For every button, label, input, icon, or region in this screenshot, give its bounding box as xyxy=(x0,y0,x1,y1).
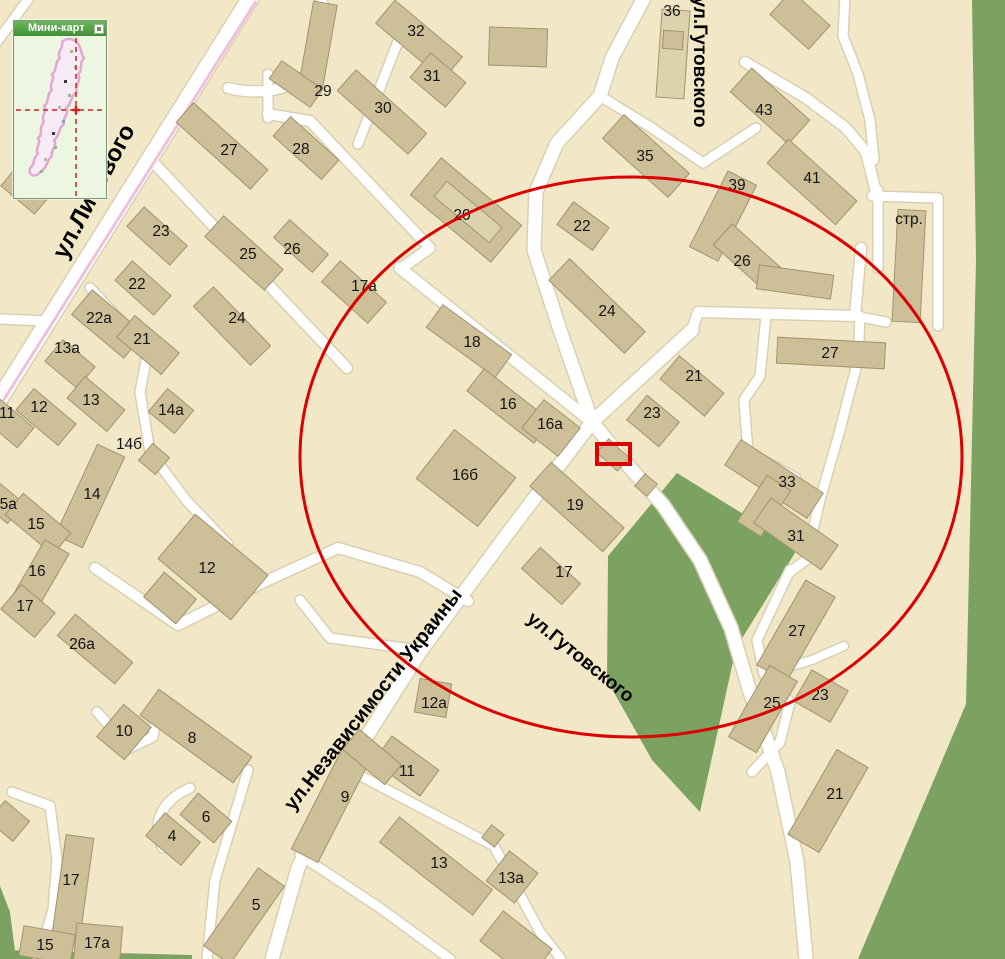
minimap-close-icon[interactable] xyxy=(94,24,104,34)
building-number-label: 35 xyxy=(636,148,653,165)
building-number-label: 15 xyxy=(27,516,44,533)
road xyxy=(855,316,886,322)
building-number-label: 26 xyxy=(733,253,750,270)
building-number-label: 12a xyxy=(421,695,447,712)
building-number-label: 17 xyxy=(16,598,33,615)
building-number-label: 30 xyxy=(374,100,392,117)
building-number-label: 4 xyxy=(168,828,177,845)
building-number-label: 31 xyxy=(423,68,440,85)
minimap-body[interactable] xyxy=(14,36,106,198)
building-number-label: 10 xyxy=(115,723,133,740)
building-number-label: 27 xyxy=(821,345,838,362)
minimap-detail-speck xyxy=(44,158,47,161)
minimap-title: Мини-карт xyxy=(28,21,85,36)
minimap-position-marker xyxy=(72,106,80,114)
building-number-label: 31 xyxy=(787,528,804,545)
building-number-label: 26a xyxy=(69,636,95,653)
building-number-label: 21 xyxy=(133,331,150,348)
building-number-label: 23 xyxy=(643,405,660,422)
building-number-label: 13a xyxy=(54,340,80,357)
minimap-detail-speck xyxy=(58,106,61,109)
building-number-label: 14б xyxy=(116,436,142,453)
road xyxy=(0,319,46,321)
building-number-label: 17 xyxy=(555,564,572,581)
building-number-label: 29 xyxy=(314,83,331,100)
minimap-detail-speck xyxy=(68,94,71,97)
map-canvas[interactable]: 293231302827232526222422a2113a12131114a1… xyxy=(0,0,1005,959)
building-number-label: 19 xyxy=(566,497,583,514)
minimap-header: Мини-карт xyxy=(14,21,106,36)
building-number-label: 27 xyxy=(788,623,805,640)
building-number-label: 11 xyxy=(0,405,15,422)
minimap-detail-speck xyxy=(52,132,55,135)
building-number-label: 5 xyxy=(252,897,261,914)
building-number-label: 17a xyxy=(84,935,110,952)
building-number-label: 43 xyxy=(755,102,772,119)
minimap[interactable]: Мини-карт xyxy=(13,20,107,199)
minimap-detail-speck xyxy=(54,146,57,149)
building-number-label: 17 xyxy=(62,872,79,889)
building-number-label: 21 xyxy=(685,368,702,385)
building-number-label: 16б xyxy=(452,467,478,484)
building-number-label: 18 xyxy=(463,334,480,351)
minimap-detail-speck xyxy=(70,50,73,53)
building-number-label: 14 xyxy=(83,486,101,503)
minimap-detail-speck xyxy=(62,120,65,123)
street-name-label: ул.Гутовского xyxy=(689,0,710,128)
building[interactable] xyxy=(656,9,690,99)
building-number-label: 32 xyxy=(407,23,424,40)
building-number-label: 13a xyxy=(498,870,524,887)
building-number-label: 22 xyxy=(128,276,145,293)
minimap-detail-speck xyxy=(64,80,67,83)
building-number-label: 16 xyxy=(499,396,516,413)
building-number-label: 22 xyxy=(573,218,590,235)
building-number-label: 15a xyxy=(0,496,17,513)
building-number-label: 26 xyxy=(283,241,300,258)
building-number-label: 36 xyxy=(663,3,680,20)
building[interactable] xyxy=(662,30,683,49)
building-number-label: 14a xyxy=(158,402,184,419)
building-number-label: 41 xyxy=(803,170,820,187)
building-number-label: 6 xyxy=(202,809,211,826)
building-number-label: 22a xyxy=(86,310,112,327)
building-number-label: 27 xyxy=(220,142,237,159)
minimap-overview-graphic xyxy=(14,36,106,198)
building-number-label: 28 xyxy=(292,141,309,158)
map-application: 293231302827232526222422a2113a12131114a1… xyxy=(0,0,1005,959)
building[interactable] xyxy=(488,27,547,67)
building-number-label: 12 xyxy=(198,560,215,577)
building-number-label: 12 xyxy=(30,399,47,416)
building-number-label: стр. xyxy=(895,211,923,228)
building-number-label: 11 xyxy=(399,763,415,780)
building-number-label: 13 xyxy=(430,855,447,872)
building-number-label: 24 xyxy=(228,310,246,327)
building-number-label: 23 xyxy=(152,223,169,240)
building-number-label: 8 xyxy=(188,730,197,747)
building-number-label: 16a xyxy=(537,416,563,433)
building-number-label: 25 xyxy=(239,246,256,263)
building-number-label: 13 xyxy=(82,392,99,409)
minimap-detail-speck xyxy=(40,170,43,173)
building-number-label: 33 xyxy=(778,474,795,491)
building-number-label: 9 xyxy=(341,789,350,806)
building-number-label: 24 xyxy=(598,303,616,320)
building-number-label: 15 xyxy=(36,937,53,954)
building-number-label: 21 xyxy=(826,786,843,803)
building-number-label: 16 xyxy=(28,563,45,580)
